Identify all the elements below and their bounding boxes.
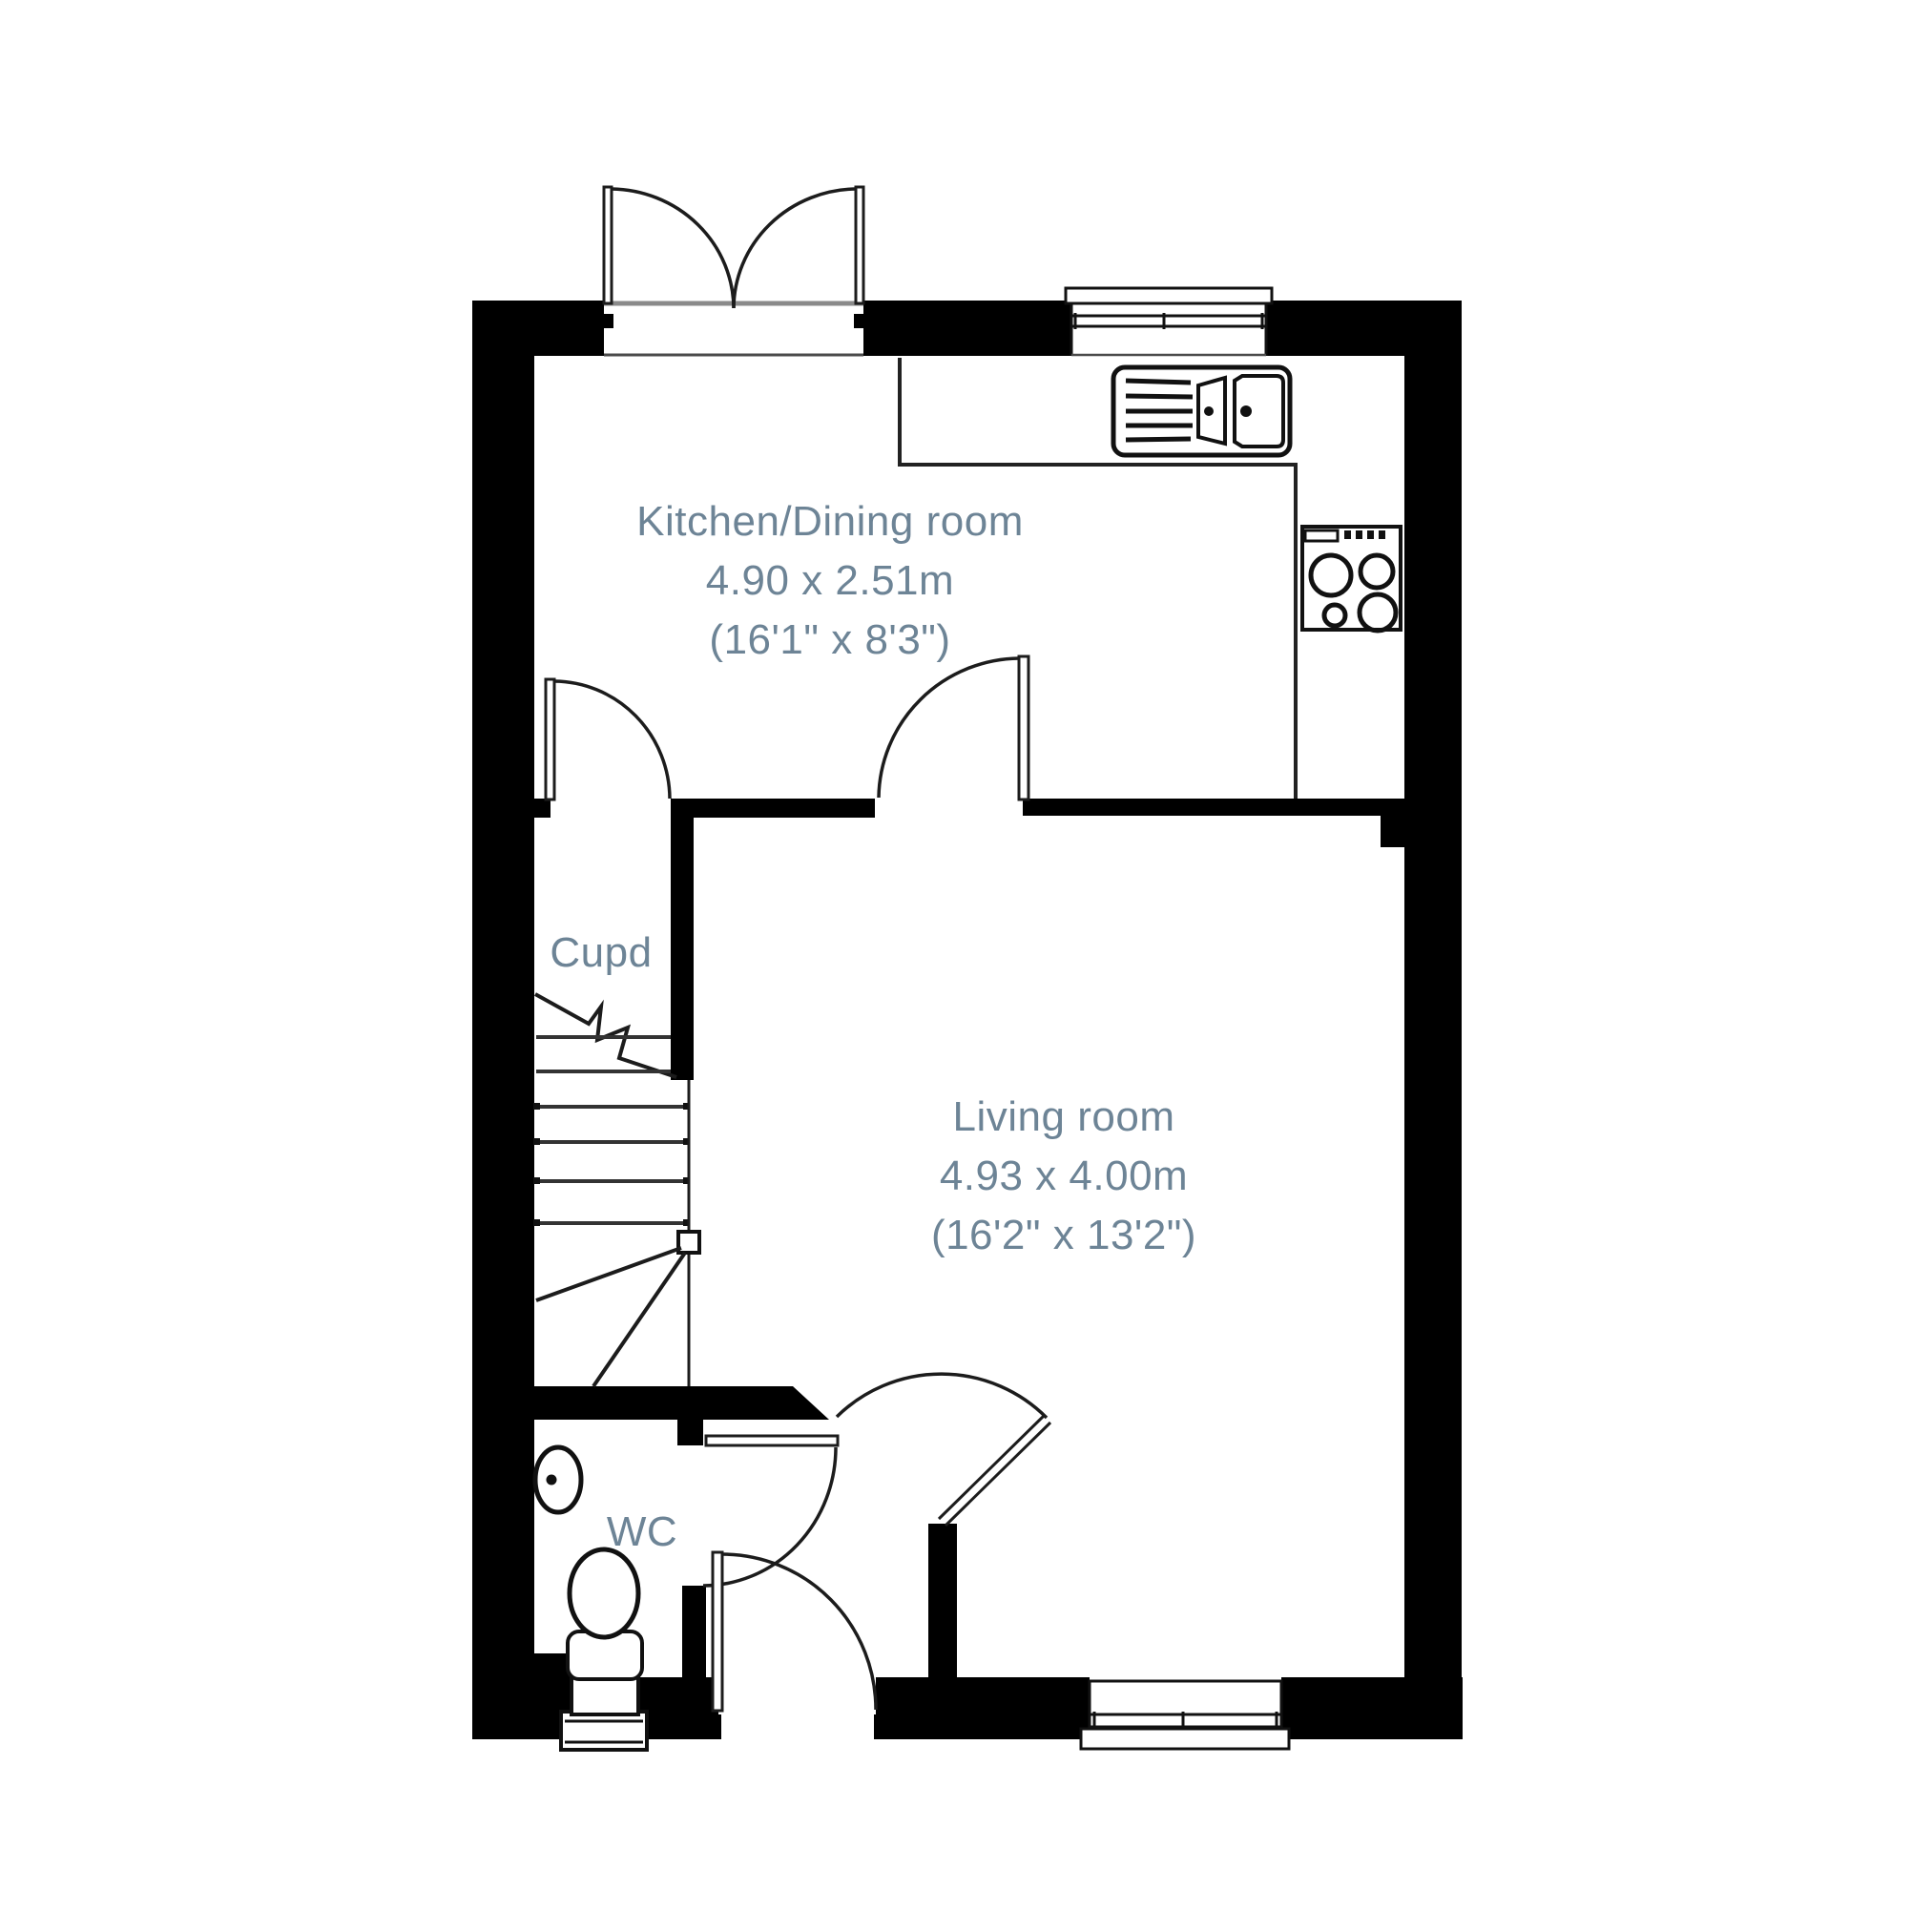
wc-label: WC xyxy=(607,1503,677,1562)
door-kitchen-right xyxy=(879,656,1028,800)
door-swing-left xyxy=(612,189,734,308)
wall-step-wc xyxy=(534,1653,570,1682)
stair-wall xyxy=(671,817,694,1080)
door-leaf-right xyxy=(856,187,863,303)
door-living-leaf xyxy=(939,1416,1044,1519)
living-room-dimensions-metric: 4.93 x 4.00m xyxy=(931,1147,1196,1206)
front-door-jamb-right xyxy=(874,1714,885,1739)
toilet-bowl xyxy=(570,1549,638,1637)
french-jamb-right xyxy=(854,314,863,328)
wall-bottom-c xyxy=(1281,1677,1463,1739)
wc-basin xyxy=(535,1447,581,1512)
kitchen-dimensions-imperial: (16'1" x 8'3") xyxy=(636,611,1024,670)
wall-bottom-b xyxy=(876,1677,1090,1739)
door-kitchen-left xyxy=(546,679,670,800)
door-living-leaf xyxy=(945,1423,1050,1526)
door-kitchen-left-swing xyxy=(554,681,670,799)
pilaster-top-right xyxy=(1381,816,1404,847)
front-door-jamb-left xyxy=(710,1714,721,1739)
living-room-name: Living room xyxy=(931,1088,1196,1147)
window-bottom-box xyxy=(1090,1681,1281,1729)
toilet-cistern xyxy=(571,1676,638,1714)
divider-stub-left xyxy=(534,799,551,818)
wall-top-b xyxy=(863,301,1071,356)
window-bottom-sill xyxy=(1081,1729,1289,1749)
basin-bowl xyxy=(535,1447,581,1512)
wall-top-c xyxy=(1266,301,1409,356)
living-door-stub xyxy=(928,1524,957,1679)
wc-wall-step xyxy=(677,1415,703,1445)
basin-drain xyxy=(547,1475,557,1485)
door-kitchen-right-swing xyxy=(879,658,1019,798)
kitchen-name: Kitchen/Dining room xyxy=(636,492,1024,551)
door-kitchen-right-leaf xyxy=(1019,656,1028,800)
hall-top-wall xyxy=(534,1386,829,1420)
french-doors xyxy=(604,187,863,355)
kitchen-dimensions-metric: 4.90 x 2.51m xyxy=(636,551,1024,611)
door-living xyxy=(837,1374,1050,1526)
kitchen-sink xyxy=(1113,367,1290,455)
stair-tread-dots xyxy=(533,1103,690,1226)
door-wc-leaf xyxy=(706,1436,838,1445)
french-jamb-left xyxy=(604,314,613,328)
wall-right xyxy=(1404,301,1462,1739)
door-swing-right xyxy=(734,189,856,308)
wc-toilet xyxy=(561,1549,647,1750)
cupboard-label: Cupd xyxy=(550,924,652,983)
window-top-sill xyxy=(1066,288,1272,303)
divider-right xyxy=(1023,799,1404,816)
divider-mid xyxy=(671,799,875,818)
window-bottom xyxy=(1081,1681,1289,1749)
wall-top-a xyxy=(472,301,604,356)
door-living-swing xyxy=(837,1374,1047,1418)
floor-plan-drawing xyxy=(0,0,1932,1932)
living-room-label: Living room 4.93 x 4.00m (16'2" x 13'2") xyxy=(931,1088,1196,1265)
living-room-dimensions-imperial: (16'2" x 13'2") xyxy=(931,1206,1196,1265)
kitchen-label: Kitchen/Dining room 4.90 x 2.51m (16'1" … xyxy=(636,492,1024,670)
wall-left xyxy=(472,301,534,1739)
sink-drain-small xyxy=(1204,406,1214,416)
sink-drain-large xyxy=(1240,405,1252,417)
wc-wall-stub xyxy=(682,1586,706,1679)
floor-plan: Kitchen/Dining room 4.90 x 2.51m (16'1" … xyxy=(0,0,1932,1932)
window-top xyxy=(1066,288,1272,356)
cupboard-name: Cupd xyxy=(550,924,652,983)
door-front xyxy=(713,1552,876,1711)
door-leaf-left xyxy=(604,187,612,303)
door-kitchen-left-leaf xyxy=(546,679,554,800)
wc-name: WC xyxy=(607,1503,677,1562)
hob xyxy=(1302,527,1401,631)
toilet-base xyxy=(561,1712,647,1750)
door-front-leaf xyxy=(713,1552,722,1711)
